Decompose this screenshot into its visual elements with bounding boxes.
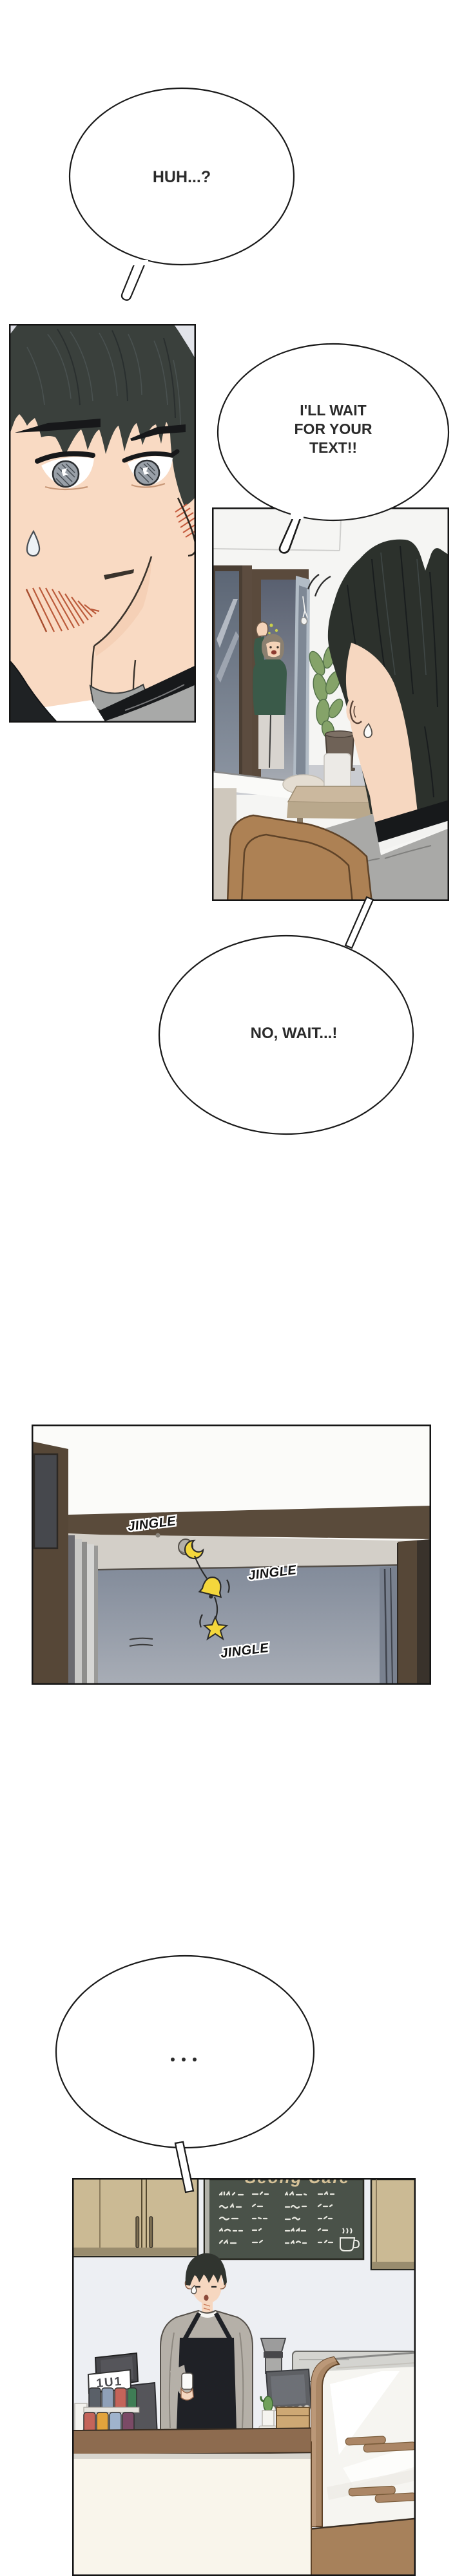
- svg-text:HUH...?: HUH...?: [153, 168, 211, 186]
- svg-text:I'LL WAIT: I'LL WAIT: [300, 402, 366, 419]
- svg-text:NO, WAIT...!: NO, WAIT...!: [251, 1025, 338, 1042]
- svg-text:FOR YOUR: FOR YOUR: [295, 421, 372, 437]
- svg-text:TEXT!!: TEXT!!: [309, 439, 357, 456]
